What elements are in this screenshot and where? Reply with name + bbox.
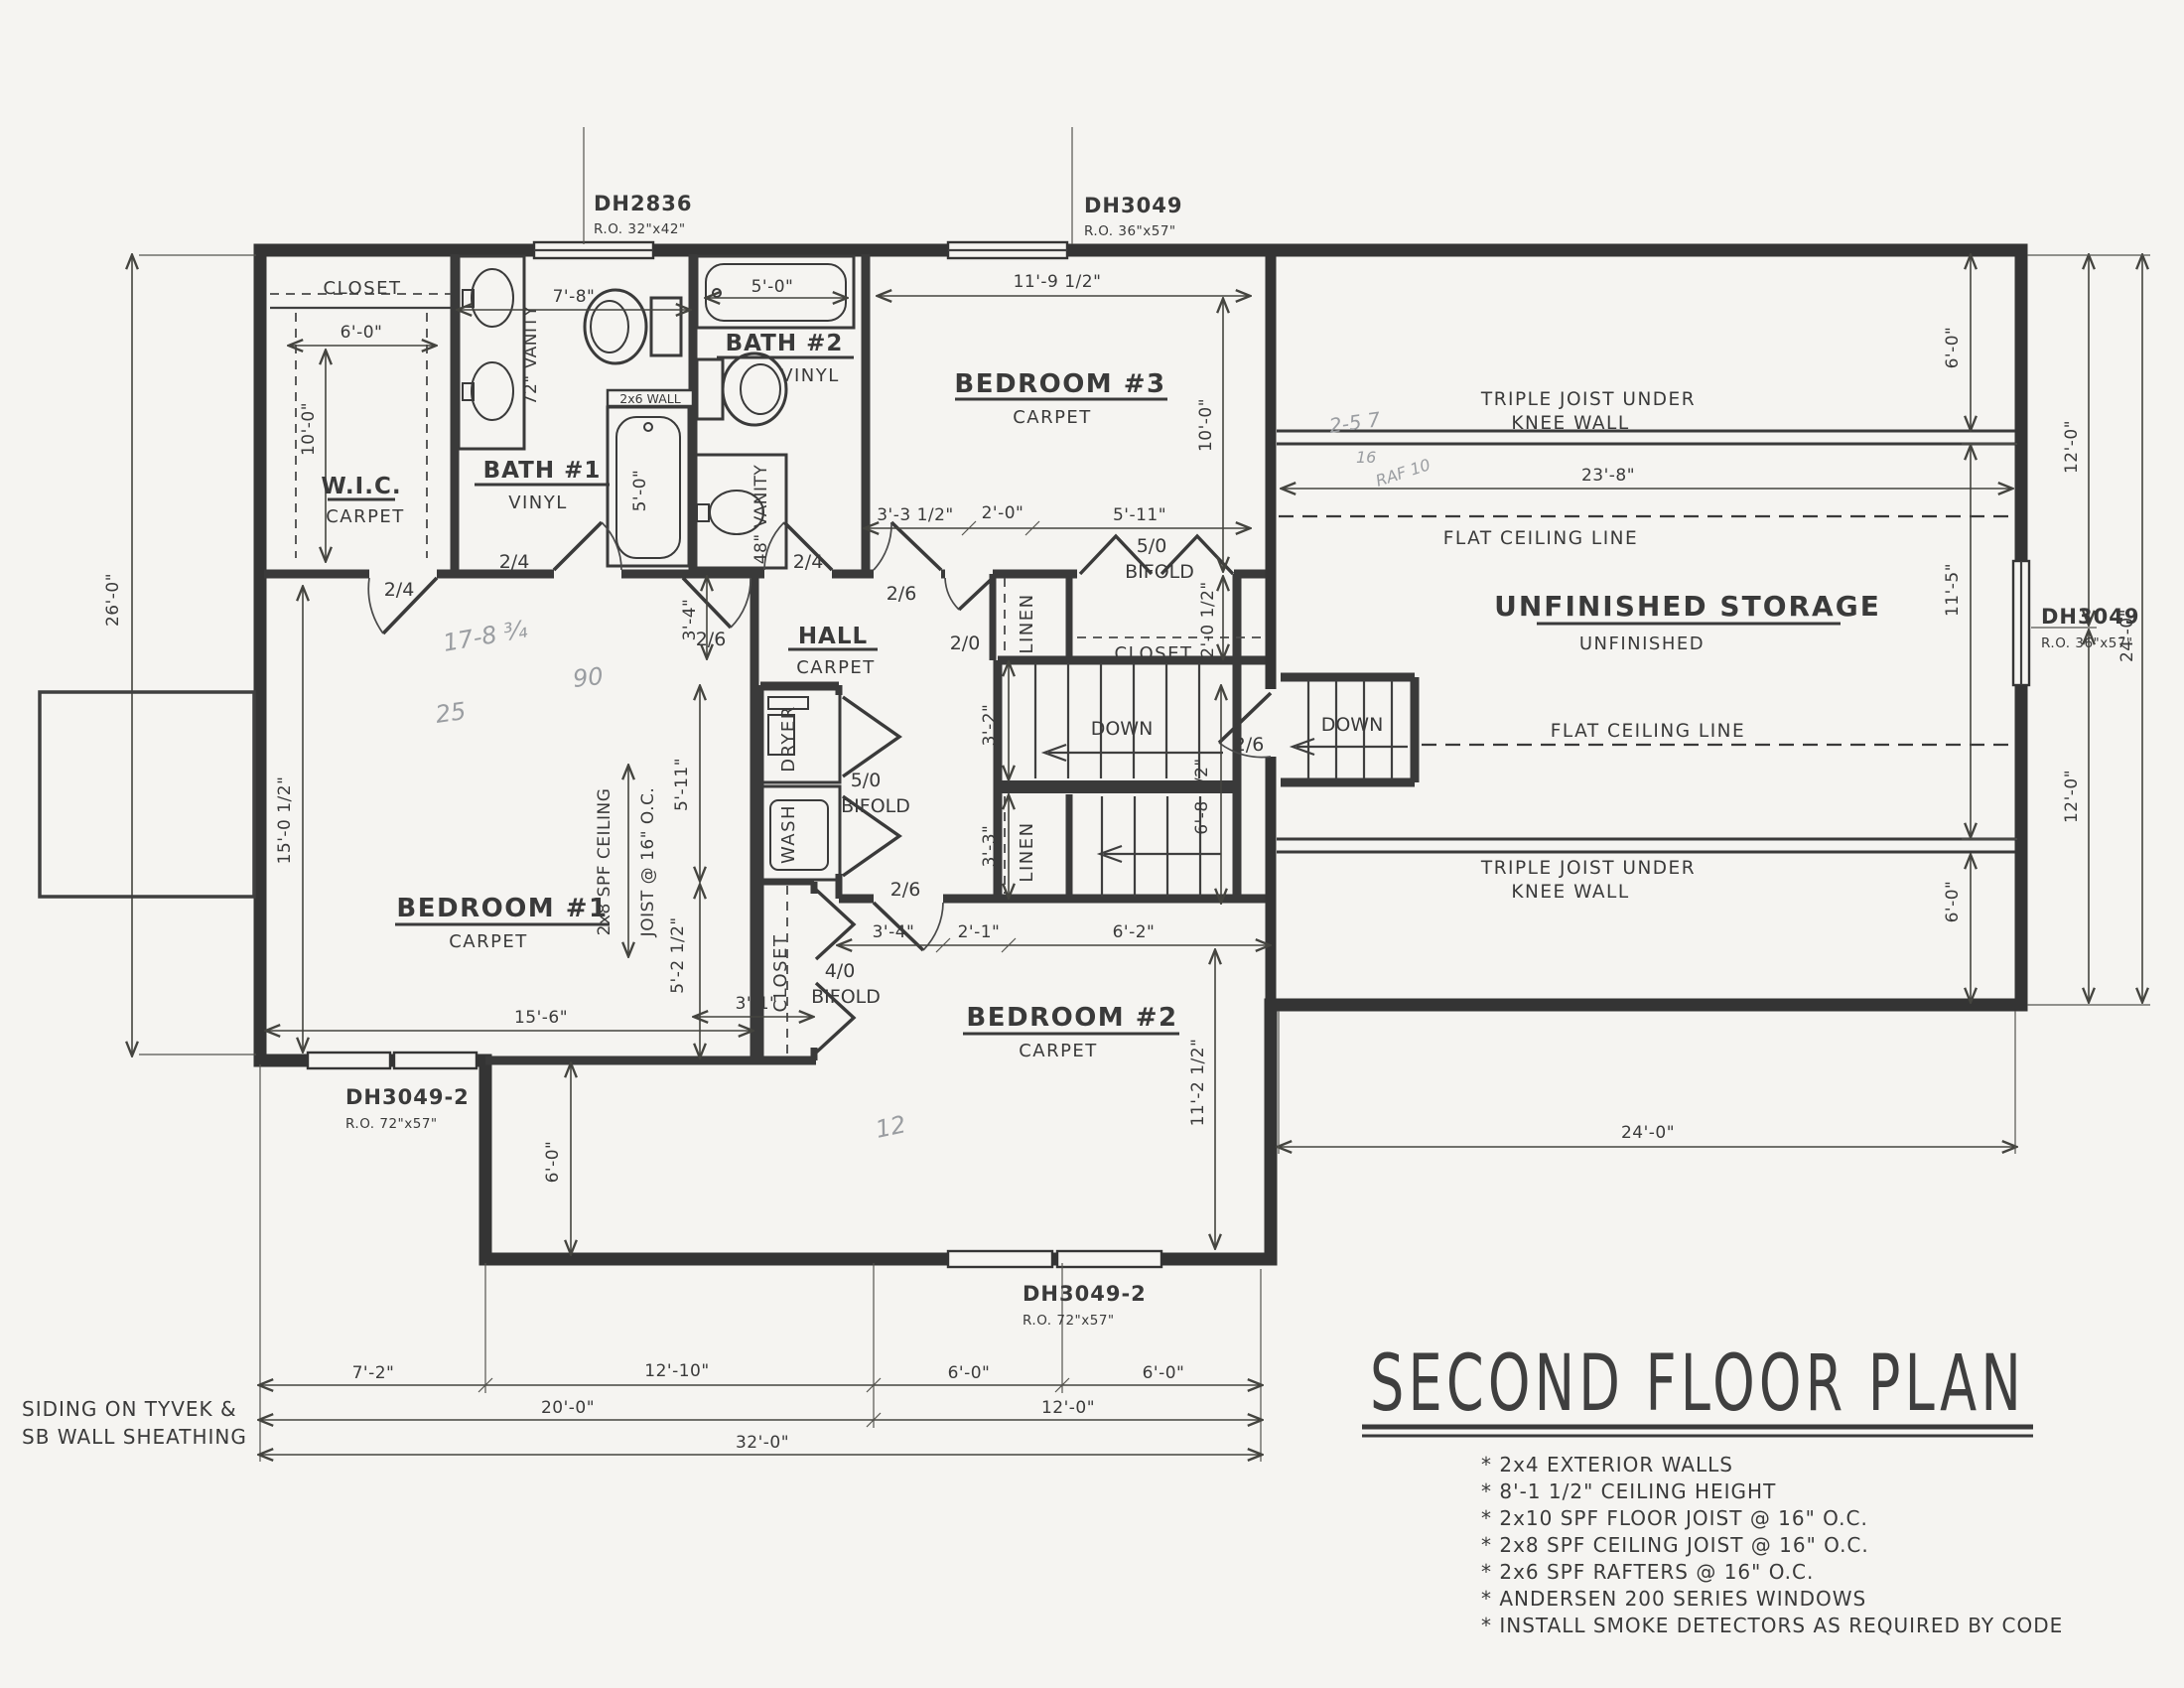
window-dh2836 <box>534 242 653 258</box>
bath2-vanity-label: 48" VANITY <box>751 465 771 565</box>
room-bed2: BEDROOM #2 <box>966 1003 1177 1033</box>
linen-door <box>945 578 993 610</box>
dim-stair-lower: 3'-3" <box>980 825 1000 868</box>
lower-roof-outline <box>40 692 254 897</box>
washer-dryer <box>760 689 840 880</box>
dim-closet-strip: 5'-2 1/2" <box>668 916 688 994</box>
dim-right-12b: 12'-0" <box>2062 770 2082 823</box>
window-ro-dh3049-2-mid: R.O. 72"x57" <box>1023 1313 1115 1329</box>
dim-knee-top: 6'-0" <box>1943 327 1963 369</box>
bath2-vanity <box>695 455 786 568</box>
door-bath2: 2/4 <box>793 551 824 573</box>
room-bed3: BEDROOM #3 <box>954 369 1165 399</box>
note-3: * 2x10 SPF FLOOR JOIST @ 16" O.C. <box>1481 1506 1868 1530</box>
dim-hall-a: 3'-3 1/2" <box>877 505 954 525</box>
door-linen: 2/0 <box>950 633 981 654</box>
dim-bottom-12-10: 12'-10" <box>644 1361 709 1381</box>
dim-bed2-b: 2'-1" <box>958 922 1001 942</box>
stair-down-label: DOWN <box>1091 718 1154 740</box>
bath1-vanity-label: 72" VANITY <box>521 306 541 406</box>
note-5: * 2x6 SPF RAFTERS @ 16" O.C. <box>1481 1560 1814 1584</box>
dim-bath1-width: 7'-8" <box>553 287 596 307</box>
room-bed1-floor: CARPET <box>449 931 528 952</box>
pencil-note-7: RAF 10 <box>1373 455 1433 491</box>
door-bed3: 2/6 <box>887 583 917 605</box>
dim-wic-width: 6'-0" <box>341 323 383 343</box>
dim-bed2-c: 6'-2" <box>1113 922 1156 942</box>
triple-joist-bottom-2: KNEE WALL <box>1511 882 1629 903</box>
bed2-bifold-size: 4/0 <box>825 960 856 982</box>
window-label-dh3049-2-left: DH3049-2 <box>345 1085 470 1109</box>
flat-ceiling-top: FLAT CEILING LINE <box>1443 528 1638 549</box>
room-bed1: BEDROOM #1 <box>396 894 608 923</box>
laundry-bifold-top <box>843 697 899 776</box>
window-dh3049-right <box>2013 561 2029 685</box>
joist-note-1: 2x8 SPF CEILING <box>595 788 614 936</box>
bed2-bifold-label: BIFOLD <box>811 986 881 1008</box>
bath1-vanity <box>459 256 524 449</box>
dim-bottom-7-2: 7'-2" <box>352 1363 395 1383</box>
room-bath1: BATH #1 <box>483 458 602 484</box>
floor-plan-drawing: DH2836 R.O. 32"x42" DH3049 R.O. 36"x57" … <box>0 0 2184 1688</box>
note-4: * 2x8 SPF CEILING JOIST @ 16" O.C. <box>1481 1533 1869 1557</box>
dim-right-24: 24'-0" <box>2117 609 2137 662</box>
linen-lower-label: LINEN <box>1017 821 1037 882</box>
sheet-title: SECOND FLOOR PLAN <box>1370 1339 2025 1429</box>
siding-note-2: SB WALL SHEATHING <box>22 1425 247 1449</box>
dim-hall-c: 5'-11" <box>1113 505 1166 525</box>
dim-bottom-12: 12'-0" <box>1041 1398 1095 1418</box>
wic-closet-label: CLOSET <box>324 278 402 299</box>
dim-right-12a: 12'-0" <box>2062 420 2082 474</box>
bath2-toilet <box>697 353 786 425</box>
room-bed2-floor: CARPET <box>1019 1041 1098 1061</box>
dim-bottom-32: 32'-0" <box>736 1433 789 1453</box>
window-dh3049-top <box>948 242 1067 258</box>
joist-note-2: JOIST @ 16" O.C. <box>638 787 658 938</box>
door-storage: 2/6 <box>1234 734 1265 756</box>
dim-bed2-a: 3'-4" <box>873 922 915 942</box>
room-storage: UNFINISHED STORAGE <box>1494 590 1881 623</box>
triple-joist-top-1: TRIPLE JOIST UNDER <box>1480 389 1696 410</box>
window-ro-dh3049-top: R.O. 36"x57" <box>1084 223 1176 239</box>
flat-ceiling-bottom: FLAT CEILING LINE <box>1551 721 1745 742</box>
bed3-bifold-label: BIFOLD <box>1125 561 1194 583</box>
room-storage-sub: UNFINISHED <box>1579 633 1705 654</box>
pencil-note-1: 17-8 ¾ <box>441 616 529 657</box>
triple-joist-top-2: KNEE WALL <box>1511 413 1629 434</box>
note-1: * 2x4 EXTERIOR WALLS <box>1481 1453 1733 1477</box>
pencil-note-2: 90 <box>572 662 605 693</box>
dim-bath1-tub: 5'-0" <box>630 470 650 512</box>
pencil-note-3: 25 <box>434 697 468 729</box>
dim-bed2-step: 6'-0" <box>543 1141 563 1184</box>
laundry-bifold-label: BIFOLD <box>841 795 910 817</box>
dim-bed3-depth: 10'-0" <box>1196 398 1216 452</box>
dim-bed3-width: 11'-9 1/2" <box>1014 272 1102 292</box>
room-wic-floor: CARPET <box>326 506 405 527</box>
room-bath2-floor: VINYL <box>780 365 840 386</box>
dim-bed2-height: 11'-2 1/2" <box>1188 1039 1208 1127</box>
dim-bed1-door: 3'-4" <box>680 599 700 641</box>
pencil-note-6: 16 <box>1356 448 1376 467</box>
dim-storage-bottom: 24'-0" <box>1621 1123 1675 1143</box>
triple-joist-bottom-1: TRIPLE JOIST UNDER <box>1480 858 1696 879</box>
pencil-note-4: 12 <box>873 1110 908 1144</box>
window-label-dh3049-top: DH3049 <box>1084 194 1182 217</box>
dim-storage-mid: 11'-5" <box>1943 563 1963 617</box>
pencil-note-5: 2-5 7 <box>1327 407 1382 438</box>
window-label-dh3049-2-mid: DH3049-2 <box>1023 1282 1147 1306</box>
hall-closet-label: CLOSET <box>1115 643 1193 664</box>
bath1-toilet <box>585 290 681 363</box>
dim-left-26: 26'-0" <box>103 573 123 627</box>
door-bed1: 2/6 <box>696 629 727 650</box>
room-hall-floor: CARPET <box>796 657 876 678</box>
dim-bath2-tub: 5'-0" <box>751 277 794 297</box>
dim-stair-storage: 6'-8 1/2" <box>1192 758 1212 835</box>
room-wic: W.I.C. <box>321 474 401 499</box>
room-bed3-floor: CARPET <box>1013 407 1092 428</box>
bath1-2x6-wall-label: 2x6 WALL <box>619 391 680 406</box>
note-6: * ANDERSEN 200 SERIES WINDOWS <box>1481 1587 1866 1611</box>
window-ro-dh2836: R.O. 32"x42" <box>594 221 686 237</box>
dim-bed2-closet: 3'-1" <box>736 994 778 1014</box>
dim-laundry: 5'-11" <box>672 758 692 811</box>
dim-wic-depth: 10'-0" <box>299 402 319 456</box>
floor-plan-sheet: DH2836 R.O. 32"x42" DH3049 R.O. 36"x57" … <box>0 0 2184 1688</box>
room-hall: HALL <box>798 624 868 649</box>
dim-stair-upper: 3'-2" <box>980 704 1000 747</box>
dim-knee-bottom: 6'-0" <box>1943 881 1963 923</box>
bed3-door <box>874 522 941 570</box>
bath1-door <box>554 522 621 570</box>
storage-stair-down-label: DOWN <box>1321 714 1384 736</box>
siding-note-1: SIDING ON TYVEK & <box>22 1397 237 1421</box>
dim-hall-b: 2'-0" <box>982 503 1024 523</box>
bed3-bifold-size: 5/0 <box>1137 535 1167 557</box>
dim-storage-width: 23'-8" <box>1581 466 1635 486</box>
note-7: * INSTALL SMOKE DETECTORS AS REQUIRED BY… <box>1481 1614 2063 1637</box>
washer-label: WASH <box>778 804 799 864</box>
door-bed2: 2/6 <box>890 879 921 901</box>
room-bath2: BATH #2 <box>726 331 844 356</box>
dim-bottom-6b: 6'-0" <box>1143 1363 1185 1383</box>
window-ro-dh3049-2-left: R.O. 72"x57" <box>345 1116 438 1132</box>
note-2: * 8'-1 1/2" CEILING HEIGHT <box>1481 1479 1776 1503</box>
linen-upper-label: LINEN <box>1017 593 1037 653</box>
room-bath1-floor: VINYL <box>508 492 568 513</box>
door-bath1: 2/4 <box>499 551 530 573</box>
dim-bottom-20: 20'-0" <box>541 1398 595 1418</box>
dryer-label: DRYER <box>778 705 799 773</box>
dim-bed1-width: 15'-6" <box>514 1008 568 1028</box>
dim-bottom-6a: 6'-0" <box>948 1363 991 1383</box>
window-label-dh2836: DH2836 <box>594 192 692 215</box>
windows <box>308 242 2029 1267</box>
door-wic: 2/4 <box>384 579 415 601</box>
dim-bed1-height: 15'-0 1/2" <box>275 776 295 865</box>
laundry-bifold-size: 5/0 <box>851 770 882 791</box>
dim-closet-depth: 2'-0 1/2" <box>1198 581 1218 658</box>
